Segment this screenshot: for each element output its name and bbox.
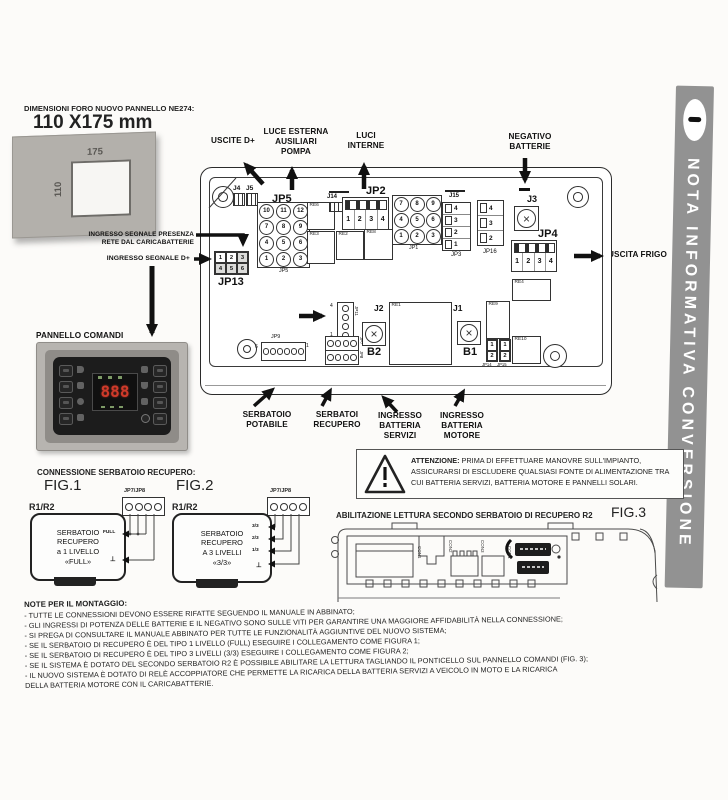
screw-j2: × (362, 322, 386, 346)
label-jp9: JP9 (271, 334, 280, 340)
signal-icon (141, 382, 148, 389)
fig1-label: FIG.1 (44, 477, 82, 494)
fig2-pin-23: 2/3 (252, 536, 259, 541)
jp4-pin: 2 (523, 253, 534, 271)
fig3-heading: ABILITAZIONE LETTURA SECONDO SERBATOIO D… (336, 511, 593, 520)
jp13-pin: 2 (226, 252, 237, 263)
jp3-pin: 1 (443, 239, 470, 250)
jp5-pin: 2 (276, 252, 291, 267)
mounting-hole-br (543, 344, 567, 368)
jp3-pin: 4 (443, 203, 470, 215)
jp5-pin-grid: 101112789456123 (257, 202, 310, 268)
label-jp2: JP2 (366, 185, 386, 197)
mounting-hole-bl (237, 339, 257, 359)
label-b2: B2 (367, 346, 381, 358)
fig3-label: FIG.3 (611, 504, 646, 520)
connector-jp16: 432 (477, 200, 504, 246)
panel-button-3 (59, 397, 73, 409)
warning-box: ATTENZIONE: PRIMA DI EFFETTUARE MANOVRE … (356, 449, 684, 499)
fig2-jp7jp8-connector (267, 497, 310, 516)
jp4-pin: 1 (512, 253, 523, 271)
panel-button-2 (59, 381, 73, 393)
dimensions-size: 110 X175 mm (33, 112, 152, 134)
jp13-pin: 5 (226, 263, 237, 274)
fig3-con4-label: CON4 (507, 546, 512, 559)
jp1-pin: 5 (410, 213, 425, 228)
connector-jp13: 123456 (214, 251, 249, 275)
panel-cutout-drawing: 175 110 (12, 131, 156, 238)
fig2-label: FIG.2 (176, 477, 214, 494)
jp2-pin: 1 (343, 210, 355, 229)
label-jp1: JP1 (409, 245, 418, 251)
fig3-con3-label: CON3 (480, 540, 485, 553)
jp1-pin: 8 (410, 197, 425, 212)
warning-title: ATTENZIONE: (411, 456, 460, 465)
jp5-pin: 5 (276, 236, 291, 251)
fig2-ref-label: R1/R2 (172, 502, 198, 512)
heater-icon (141, 398, 148, 405)
fig2-tank-tab (196, 579, 238, 588)
panel-display: 888 (92, 373, 138, 411)
callout-luci-interne: LUCI INTERNE (336, 131, 396, 151)
warning-triangle-icon (362, 451, 408, 497)
jp1-pin-grid: 789456123 (392, 195, 442, 245)
jp15-pin: 2 (500, 351, 510, 362)
display-indicator-dots (98, 376, 128, 379)
jp13-pin: 4 (215, 263, 226, 274)
hole-height-label: 110 (53, 182, 64, 198)
callout-negativo-batterie: NEGATIVO BATTERIE (496, 132, 564, 152)
jp2-pin: 4 (378, 210, 389, 229)
cutout-hole (71, 159, 131, 217)
montage-notes: NOTE PER IL MONTAGGIO: - TUTTE LE CONNES… (24, 592, 689, 691)
jp2-pin: 2 (355, 210, 367, 229)
jp13-pin: 1 (215, 252, 226, 263)
display-indicator-dots-bottom (101, 406, 123, 409)
jp1-pin: 6 (426, 213, 441, 228)
label-jp13: JP13 (218, 276, 244, 288)
label-jp9-pin1: 1 (306, 343, 309, 349)
label-jp15: JP15 (497, 362, 507, 367)
label-j14: J14 (327, 194, 337, 200)
fig1-ref-label: R1/R2 (29, 502, 55, 512)
jp14-pin: 1 (487, 340, 497, 351)
label-j5: J5 (246, 185, 253, 192)
jp1-pin: 4 (394, 213, 409, 228)
connector-jp14: 12 (486, 339, 498, 362)
label-j4: J4 (233, 185, 240, 192)
jp1-pin: 2 (410, 229, 425, 244)
callout-ingresso-batteria-motore: INGRESSO BATTERIA MOTORE (436, 411, 488, 441)
jp2-teeth (345, 200, 387, 210)
jp5-pin: 3 (293, 252, 308, 267)
control-panel-face: 888 (53, 357, 171, 435)
fig3-con1-label: CON1 (417, 546, 422, 559)
fig3-con2-label: CON2 (448, 540, 453, 553)
jp3-pin: 2 (443, 227, 470, 239)
fig2-pin-gnd: ⊥ (256, 561, 262, 569)
jp1-pin: 1 (394, 229, 409, 244)
fig2-conn-label: JP7/JP8 (270, 488, 291, 494)
board-bottom-bevel (205, 385, 606, 386)
power-icon (141, 414, 150, 423)
banner-binder-slot-icon (688, 117, 701, 122)
connector-jp15: 12 (499, 339, 511, 362)
label-jp4: JP4 (538, 228, 558, 240)
label-jp3: JP3 (451, 252, 461, 258)
connessione-heading: CONNESSIONE SERBATOIO RECUPERO: (37, 468, 195, 477)
relay-re8: RE8 (364, 229, 393, 260)
jp1-pin: 3 (426, 229, 441, 244)
screw-j3: × (514, 206, 539, 231)
jp13-pin: 3 (237, 252, 248, 263)
side-banner: NOTA INFORMATIVA CONVERSIONE (665, 86, 714, 589)
panel-button-7 (153, 397, 167, 409)
label-jp14: JP14 (482, 362, 492, 367)
connector-jp8 (325, 350, 359, 365)
control-panel-image: 888 (36, 342, 188, 451)
jp13-pin: 6 (237, 263, 248, 274)
label-j1: J1 (453, 303, 462, 313)
relay-re1: RE1 (389, 302, 452, 365)
jp5-pin: 7 (259, 220, 274, 235)
callout-uscita-frigo: USCITA FRIGO (608, 250, 674, 260)
callout-luce-esterna: LUCE ESTERNA AUSILIARI POMPA (258, 127, 334, 157)
fig1-pin-gnd: ⊥ (110, 555, 116, 563)
connector-j4 (233, 193, 245, 206)
relay-re10: RE10 (512, 336, 541, 364)
screw-j1: × (457, 321, 481, 345)
jp4-pin: 3 (535, 253, 546, 271)
jp5-pin: 11 (276, 204, 291, 219)
banner-title: NOTA INFORMATIVA CONVERSIONE (674, 158, 702, 584)
fig2-pin-13: 1/3 (252, 548, 259, 553)
panel-button-4 (59, 413, 73, 425)
callout-segnale-d: INGRESSO SEGNALE D+ (96, 255, 190, 263)
connector-jp3: 4321 (442, 202, 471, 251)
callout-presenza-rete: INGRESSO SEGNALE PRESENZA RETE DAL CARIC… (86, 231, 194, 246)
callout-serbatoi-recupero: SERBATOI RECUPERO (306, 410, 368, 430)
connector-jp9 (261, 342, 306, 361)
hole-width-label: 175 (87, 146, 103, 158)
jp5-pin: 9 (293, 220, 308, 235)
connector-jp4: 1234 (511, 240, 557, 272)
label-jp11: JP11 (354, 306, 359, 316)
connector-jp7 (325, 336, 359, 351)
connector-jp2: 1234 (342, 197, 389, 230)
relay-re4: RE4 (512, 279, 551, 301)
jp16-pin: 4 (478, 201, 503, 216)
label-j3: J3 (527, 194, 537, 204)
fig1-tank-tab (54, 577, 96, 586)
warning-text: ATTENZIONE: PRIMA DI EFFETTUARE MANOVRE … (411, 456, 675, 489)
jp1-pin: 7 (394, 197, 409, 212)
fig2-wiring (268, 514, 299, 568)
panel-button-8 (153, 413, 167, 425)
relay-re2: RE2 (336, 231, 364, 260)
callout-serbatoio-potabile: SERBATOIO POTABILE (236, 410, 298, 430)
callout-ingresso-batteria-servizi: INGRESSO BATTERIA SERVIZI (374, 411, 426, 441)
callout-uscite-d: USCITE D+ (200, 136, 266, 146)
water-tap-icon (77, 382, 84, 389)
jp5-pin: 10 (259, 204, 274, 219)
notes-lines: - TUTTE LE CONNESSIONI DEVONO ESSERE RIF… (24, 603, 689, 692)
jp2-pin: 3 (366, 210, 378, 229)
jp4-pin: 4 (546, 253, 556, 271)
fig2-pin-33: 3/3 (252, 524, 259, 529)
jp3-pin: 3 (443, 215, 470, 227)
label-j15: J15 (449, 193, 459, 199)
callout-pannello-comandi: PANNELLO COMANDI (36, 331, 132, 341)
jp16-pin: 3 (478, 216, 503, 231)
jp15-pin: 1 (500, 340, 510, 351)
fig1-conn-label: JP7/JP8 (124, 488, 145, 494)
panel-button-5 (153, 365, 167, 377)
label-jp8: JP8 (359, 351, 364, 358)
fig1-wiring (122, 514, 154, 564)
label-jp16: JP16 (483, 249, 497, 255)
banner-binder-hole (683, 99, 707, 142)
pump-icon (77, 414, 84, 421)
label-jp5-small: JP5 (279, 268, 288, 274)
jp5-pin: 6 (293, 236, 308, 251)
jp1-pin: 9 (426, 197, 441, 212)
fig3-drawing: CON1 CON2 CON3 CON4 (332, 523, 658, 602)
jp4-teeth (514, 243, 555, 253)
display-value: 888 (93, 382, 137, 401)
fig1-tank-box: SERBATOIO RECUPERO a 1 LIVELLO «FULL» (30, 513, 126, 581)
fig1-jp7jp8-connector (122, 497, 165, 516)
label-jp11-pin4: 4 (330, 303, 333, 309)
jp14-pin: 2 (487, 351, 497, 362)
tv-icon (141, 366, 148, 373)
horn-icon (77, 366, 84, 373)
label-jp9-pin6: 6 (255, 344, 258, 350)
panel-button-6 (153, 381, 167, 393)
panel-button-1 (59, 365, 73, 377)
mounting-hole-tl (212, 186, 234, 208)
silk-dash-j3 (519, 188, 530, 191)
jp5-pin: 4 (259, 236, 274, 251)
label-jp7: JP7 (359, 337, 364, 344)
fig1-pin-full: FULL (103, 530, 115, 535)
label-b1: B1 (463, 346, 477, 358)
relay-re9: RE9 (486, 301, 510, 339)
lamp-icon (77, 398, 84, 405)
jp5-pin: 1 (259, 252, 274, 267)
scanned-technical-note: NOTA INFORMATIVA CONVERSIONE DIMENSIONI … (0, 0, 728, 800)
relay-re3: RE3 (307, 231, 335, 264)
jp16-pin: 2 (478, 231, 503, 245)
mounting-hole-tr (567, 186, 589, 208)
jp5-pin: 8 (276, 220, 291, 235)
label-j2: J2 (374, 303, 383, 313)
jp5-pin: 12 (293, 204, 308, 219)
